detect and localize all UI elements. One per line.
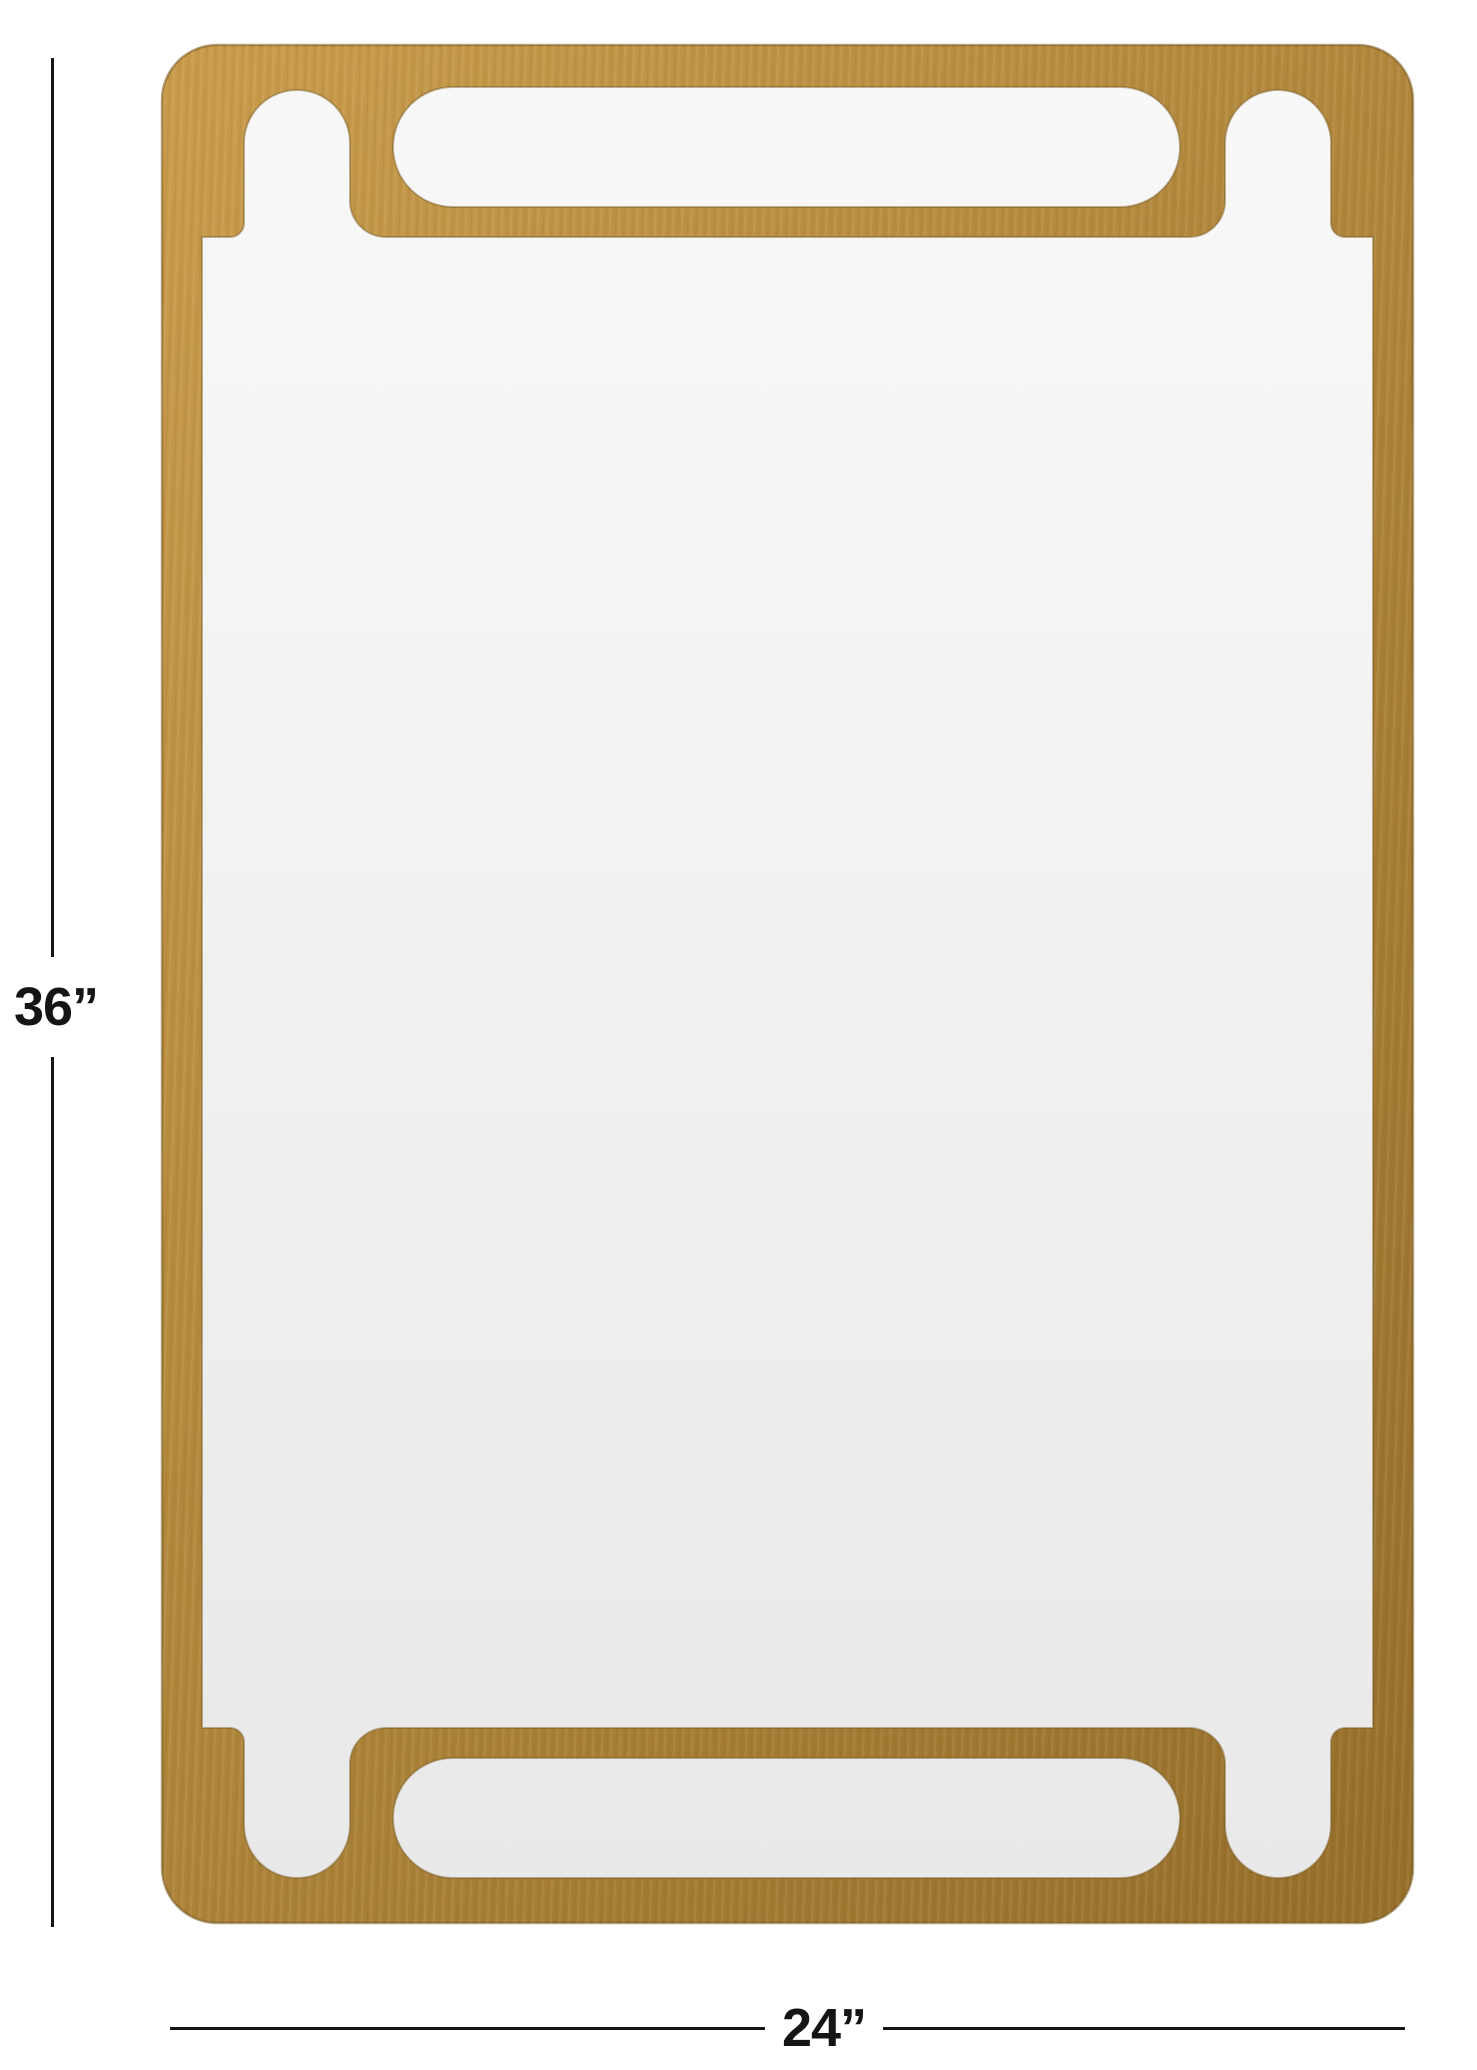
height-dimension-line-top (51, 58, 54, 957)
mirror-diagram-graphic (0, 0, 1477, 2070)
width-dimension-line-right (883, 2027, 1405, 2030)
height-dimension-label: 36” (14, 980, 98, 1034)
width-dimension-line-left (170, 2027, 765, 2030)
product-dimension-diagram: 36” 24” (0, 0, 1477, 2070)
mirror-glass (202, 87, 1373, 1878)
height-dimension-line-bottom (51, 1057, 54, 1927)
width-dimension-label: 24” (782, 2001, 866, 2055)
